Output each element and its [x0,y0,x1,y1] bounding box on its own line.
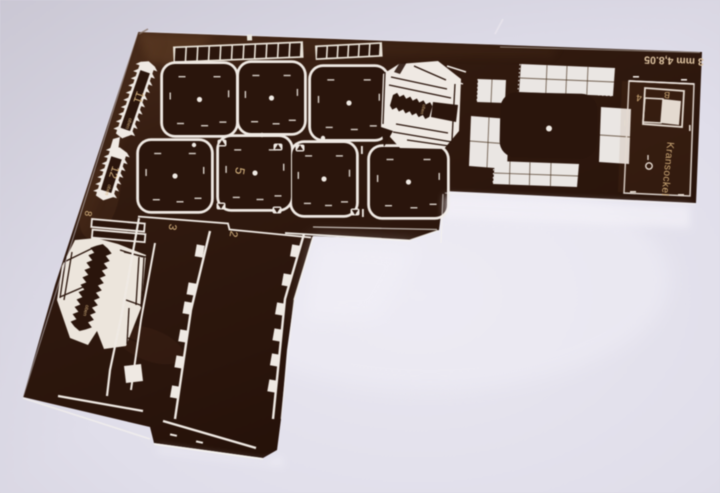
svg-text:3 mm 4,8.05: 3 mm 4,8.05 [644,53,704,67]
